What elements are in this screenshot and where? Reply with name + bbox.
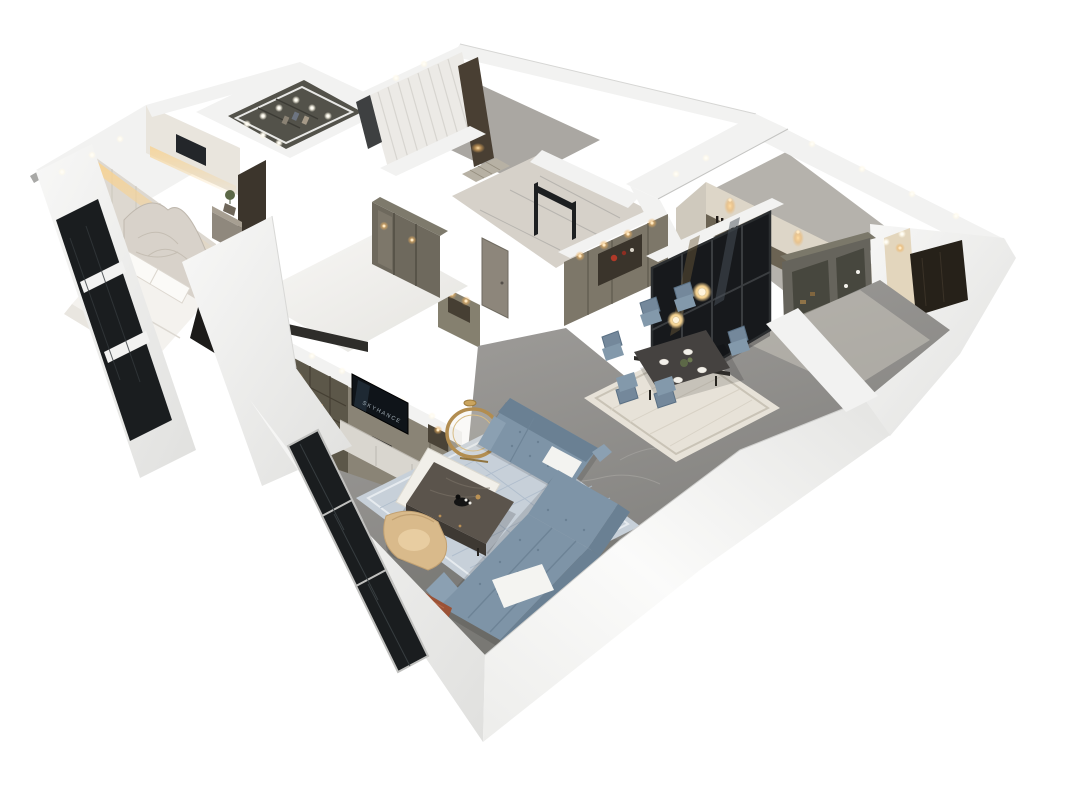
cabinet-warm-glow (471, 143, 485, 153)
floorplan-render: SKYHANCE (0, 0, 1080, 809)
hallway-door (482, 238, 508, 318)
gold-dish (464, 400, 476, 406)
gold-decor (476, 495, 481, 500)
wardrobe-glass-shine (378, 210, 392, 270)
dining-chair (602, 331, 624, 361)
floorplan-svg: SKYHANCE (0, 0, 1080, 809)
door-handle (501, 282, 504, 285)
centerpiece-plant (680, 359, 688, 367)
nightstand-plant (223, 190, 236, 216)
